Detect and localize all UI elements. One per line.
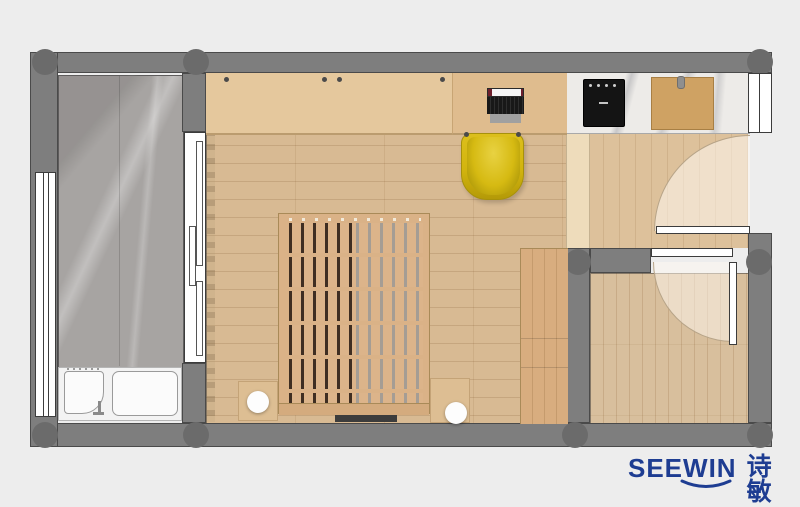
brand-logo: SEEWIN 诗敏 xyxy=(628,455,800,505)
column xyxy=(565,249,591,275)
laptop xyxy=(487,88,524,123)
cabinet-knob xyxy=(337,77,342,82)
tub-vent-ticks xyxy=(67,368,103,370)
wardrobe-counter xyxy=(206,73,452,135)
bed-slats-left xyxy=(289,223,356,403)
cooktop-knob xyxy=(597,84,600,87)
bed-top-ticks xyxy=(289,218,421,221)
bed-slats-right xyxy=(356,223,423,403)
column xyxy=(32,49,58,75)
floor-track xyxy=(335,415,397,422)
chair-arm-dot xyxy=(516,132,521,137)
bathtub-unit xyxy=(58,367,182,421)
hall-threshold-strip xyxy=(566,133,590,248)
brand-logo-text-zh: 诗敏 xyxy=(747,455,800,505)
cabinet-knob xyxy=(224,77,229,82)
wall-bottom xyxy=(30,423,772,447)
entry-door-frame-divider xyxy=(759,74,760,132)
chair-arm-dot xyxy=(464,132,469,137)
faucet-foot xyxy=(93,412,104,415)
column xyxy=(183,49,209,75)
logo-smile-swoosh xyxy=(680,479,732,489)
desk-chair xyxy=(461,133,524,200)
cooktop-knob xyxy=(589,84,592,87)
column xyxy=(746,249,772,275)
floor-plan-canvas: SEEWIN 诗敏 xyxy=(0,0,800,507)
chair-seat xyxy=(467,137,520,195)
column xyxy=(747,49,773,75)
column xyxy=(747,422,773,448)
sliding-door-panel xyxy=(189,226,196,286)
balcony-floor xyxy=(58,75,184,369)
cutting-board-handle xyxy=(677,76,685,89)
balcony-tile-seam xyxy=(119,76,120,366)
entry-door-leaf xyxy=(656,226,750,234)
cooktop-display xyxy=(599,102,608,104)
wall-small-room-top-stub xyxy=(590,248,651,273)
cabinet-knob xyxy=(440,77,445,82)
cooktop xyxy=(583,79,625,127)
entry-door-frame xyxy=(748,73,772,133)
window-mullion xyxy=(48,173,49,416)
wall-balcony-divider-bottom xyxy=(182,363,206,423)
platform-seam xyxy=(521,367,568,368)
wall-balcony-divider-top xyxy=(182,73,206,132)
cooktop-knob xyxy=(605,84,608,87)
pouf-left xyxy=(247,391,269,413)
sliding-door-panel xyxy=(196,141,203,266)
laptop-palmrest xyxy=(490,114,521,123)
column xyxy=(562,422,588,448)
cooktop-knob xyxy=(613,84,616,87)
column xyxy=(32,422,58,448)
platform-seam xyxy=(521,338,568,339)
small-room-doorway-threshold xyxy=(651,248,733,257)
pouf-right xyxy=(445,402,467,424)
bathtub-basin xyxy=(112,371,178,416)
window-mullion xyxy=(43,173,44,416)
sliding-door-panel xyxy=(196,281,203,356)
slatted-bed xyxy=(278,213,430,414)
small-room-door-leaf xyxy=(729,262,737,345)
cabinet-knob xyxy=(322,77,327,82)
balcony-window xyxy=(35,172,56,417)
raised-platform xyxy=(520,248,568,424)
wall-top xyxy=(30,52,772,73)
bed-foot-rail xyxy=(279,403,429,415)
laptop-screen-edge xyxy=(487,88,524,97)
laptop-keyboard xyxy=(487,97,524,114)
balcony-sliding-door xyxy=(184,132,206,363)
column xyxy=(183,422,209,448)
